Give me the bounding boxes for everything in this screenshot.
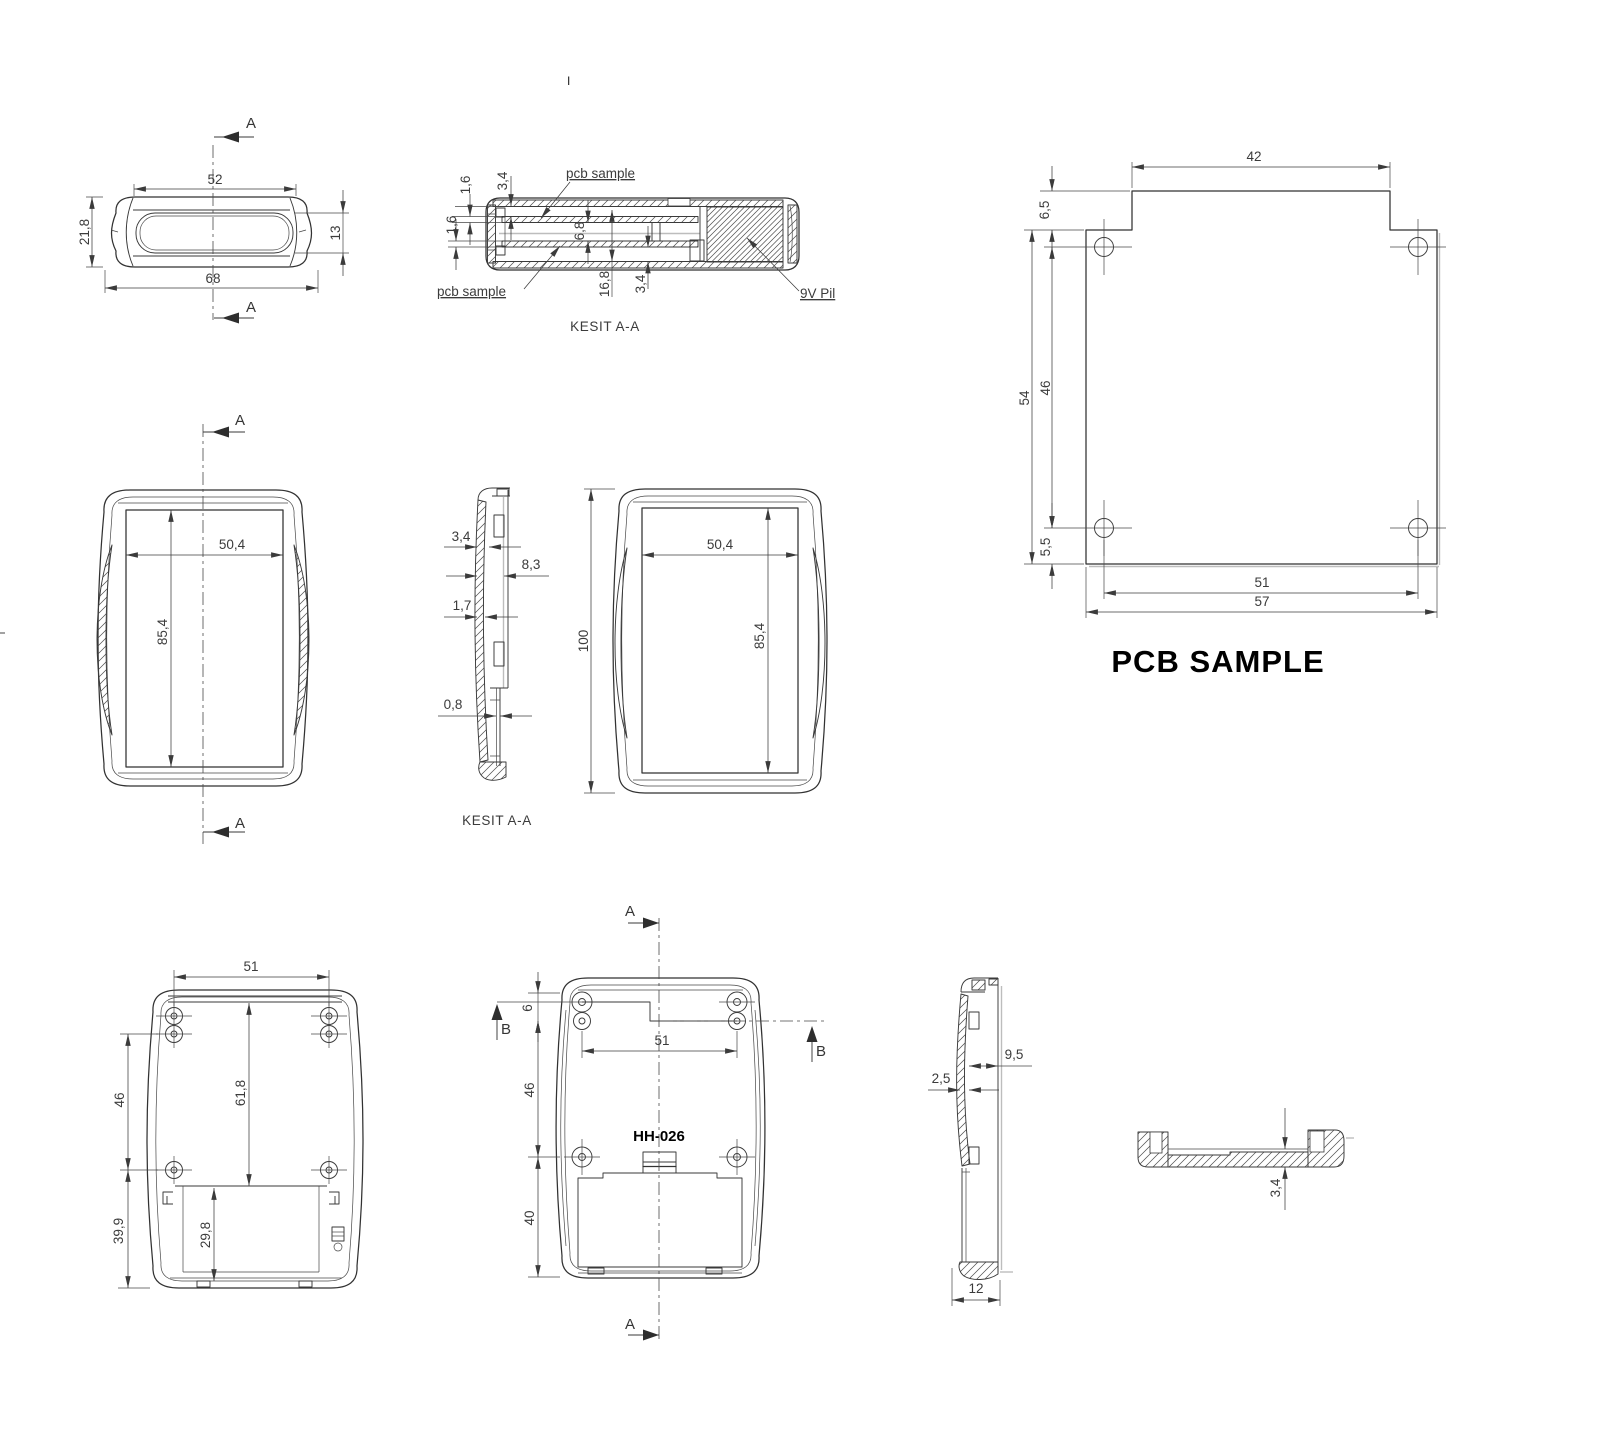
dim-inner-height: 85,4 [752, 508, 768, 773]
section-arrow-a-bottom: A [625, 1316, 659, 1341]
section-label: A [625, 903, 635, 920]
screw-boss [156, 1156, 192, 1184]
dim-label: 100 [576, 630, 591, 653]
dim-width: 68 [105, 270, 318, 293]
dim-boss-span: 51 [582, 1031, 737, 1058]
pcb-outline [1086, 191, 1437, 564]
dim-label: 51 [1254, 575, 1269, 590]
section-arrow-icon [492, 1004, 503, 1020]
wall-hatch [957, 994, 970, 1166]
section-label: A [246, 115, 256, 132]
dim-label: 68 [205, 271, 220, 286]
section-label: B [816, 1043, 826, 1060]
dim-label: 51 [654, 1033, 669, 1048]
pcb-hole [1076, 219, 1132, 275]
battery-hatch [707, 207, 783, 262]
enclosure-outline [613, 489, 827, 793]
dim-height: 21,8 [77, 197, 103, 267]
dim-label: 21,8 [77, 219, 92, 245]
view-section-aa-top: pcb sample pcb sample 9V Pil 3,4 1,6 [437, 166, 835, 334]
section-arrow-icon [212, 427, 229, 438]
sheet-stray-mark: I [567, 74, 570, 88]
dim-label: 6,5 [1037, 201, 1052, 220]
section-arrow-icon [643, 1330, 659, 1341]
section-caption: KESIT A-A [462, 813, 532, 828]
section-label: A [625, 1316, 635, 1333]
dim-board-spacing: 6,8 [572, 200, 588, 264]
dim-label: 2,5 [932, 1071, 951, 1086]
dim-label: 51 [243, 959, 258, 974]
pcb-sample-title: PCB SAMPLE [1111, 644, 1324, 679]
dim-boss-span: 51 [174, 959, 329, 1006]
section-arrow-a-top: A [203, 412, 245, 438]
enclosure-outline [112, 197, 312, 267]
view-pcb-sample: 42 6,5 54 46 5,5 51 [1017, 149, 1446, 679]
dim-label: 6 [520, 1004, 535, 1012]
door-bracket [163, 1192, 173, 1204]
view-top: 52 21,8 68 13 A [77, 115, 349, 324]
dim-label: 52 [207, 172, 222, 187]
dim-label: 61,8 [233, 1080, 248, 1106]
dim-label: 13 [328, 225, 343, 240]
wall-hatch [475, 500, 488, 762]
dim-label: 85,4 [752, 622, 767, 649]
section-arrow-b-left: B [492, 1004, 512, 1040]
pcb-bottom-bar [502, 241, 698, 247]
screw-boss [719, 1139, 755, 1175]
grip-left [615, 548, 627, 738]
dim-label: 16,8 [597, 271, 612, 297]
section-arrow-b-right: B [807, 1026, 827, 1062]
dim-battery-depth: 29,8 [198, 1188, 214, 1281]
dim-boss-v: 46 [522, 1021, 560, 1157]
section-label: B [501, 1021, 511, 1038]
view-front-right: 100 50,4 85,4 [576, 489, 827, 793]
dim-label: 3,4 [1268, 1178, 1283, 1197]
dim-inner-depth: 16,8 [597, 210, 612, 297]
dim-boss-v: 46 [112, 1034, 158, 1170]
screw-boss [311, 1002, 347, 1048]
view-back: B B HH-026 A A [492, 903, 827, 1343]
section-arrow-a-bottom: A [203, 815, 245, 838]
top-slot [136, 213, 293, 253]
floor-hatch [1168, 1152, 1308, 1167]
dim-label: 54 [1017, 390, 1032, 406]
dim-label: 46 [112, 1092, 127, 1107]
view-section-aa-side: 3,4 8,3 1,7 0,8 KESIT A-A [438, 488, 549, 828]
pcb-sample-label: pcb sample [566, 166, 635, 181]
screw-boss [727, 992, 747, 1030]
latch-clip [332, 1227, 344, 1241]
lid-wall-hatch [493, 200, 783, 207]
label-pcb-sample-bottom: pcb sample [437, 246, 560, 299]
base-hatch [479, 762, 506, 780]
pcb-top-bar [502, 217, 698, 223]
section-arrow-a-bottom: A [214, 299, 256, 324]
dim-pcb-notch: 6,5 [1024, 166, 1130, 255]
dim-label: 85,4 [155, 618, 170, 645]
section-caption: KESIT A-A [570, 319, 640, 334]
screw-boss [572, 992, 592, 1030]
dim-label: 29,8 [198, 1222, 213, 1248]
battery-compartment [163, 1186, 344, 1287]
view-front: 50,4 85,4 A A [97, 412, 309, 844]
view-inside: 51 46 61,8 39,9 29,8 [111, 959, 363, 1288]
dim-pcb-hole-span-v: 46 [1038, 247, 1076, 528]
dim-pcb-length: 54 [1017, 230, 1084, 564]
door-tab [299, 1281, 312, 1287]
pcb-sample-label: pcb sample [437, 284, 506, 299]
dim-battery-v: 40 [522, 1157, 560, 1277]
lid-notch [668, 199, 690, 207]
section-arrow-a-top: A [214, 115, 256, 143]
dim-label: 12 [968, 1281, 983, 1296]
dim-label: 1,6 [458, 176, 473, 195]
dim-label: 6,8 [572, 222, 587, 241]
dim-pcb-hole-offset: 5,5 [1038, 503, 1053, 589]
section-arrow-icon [643, 918, 659, 929]
section-label: A [235, 815, 245, 832]
enclosure-outline [147, 990, 363, 1288]
section-arrow-icon [807, 1026, 818, 1042]
section-label: A [235, 412, 245, 429]
battery-label: 9V Pil [800, 286, 835, 301]
view-section-bb-detail: 3,4 [1138, 1108, 1354, 1210]
screw-boss [564, 1139, 600, 1175]
dim-label: 50,4 [707, 537, 734, 552]
section-arrow-icon [212, 827, 229, 838]
section-arrow-a-top: A [625, 903, 659, 929]
section-arrow-icon [222, 132, 239, 143]
dim-label: 40 [522, 1210, 537, 1225]
dim-label: 39,9 [111, 1218, 126, 1244]
dim-depth: 9,5 [969, 1047, 1032, 1066]
screw-boss [311, 1156, 347, 1184]
dim-bottom-span: 39,9 [111, 1170, 150, 1288]
dim-label: 1,7 [453, 598, 472, 613]
section-arrow-icon [222, 313, 239, 324]
dim-floor-gap: 3,4 [633, 226, 648, 293]
dim-label: 3,4 [633, 274, 648, 293]
dim-label: 0,8 [444, 697, 463, 712]
section-label: A [246, 299, 256, 316]
dim-step: 6 [520, 972, 560, 1042]
dim-inner-width: 50,4 [126, 537, 283, 555]
dim-inner-height: 85,4 [155, 510, 171, 767]
dim-depth: 8,3 [446, 557, 549, 576]
dim-pcb-top-width: 42 [1132, 149, 1390, 188]
dim-label: 8,3 [522, 557, 541, 572]
dim-label: 46 [522, 1082, 537, 1097]
dim-label: 5,5 [1038, 538, 1053, 557]
dim-label: 3,4 [452, 529, 471, 544]
base-wall-hatch [493, 262, 783, 269]
dim-slot-width: 52 [134, 172, 296, 196]
dim-label: 3,4 [495, 171, 510, 190]
view-side-bottom: 9,5 2,5 12 [928, 978, 1032, 1306]
dim-label: 50,4 [219, 537, 246, 552]
grip-right [813, 548, 825, 738]
dim-height: 100 [576, 489, 615, 793]
dim-label: 9,5 [1005, 1047, 1024, 1062]
dim-inner-width: 50,4 [642, 537, 798, 555]
door-tab [197, 1281, 210, 1287]
drawing-sheet: I 52 21,8 68 [0, 0, 1606, 1440]
dim-label: 42 [1246, 149, 1261, 164]
door-latch [643, 1152, 676, 1173]
dim-label: 57 [1254, 594, 1269, 609]
door-bracket [329, 1192, 339, 1204]
dim-label: 1,6 [444, 216, 459, 235]
dim-pcb-hole-span-h: 51 [1104, 540, 1418, 599]
dim-label: 46 [1038, 380, 1053, 395]
base-hatch [959, 1262, 998, 1280]
dim-inner-span: 61,8 [233, 1003, 249, 1186]
front-panel [126, 510, 283, 767]
battery-door [578, 1152, 742, 1274]
